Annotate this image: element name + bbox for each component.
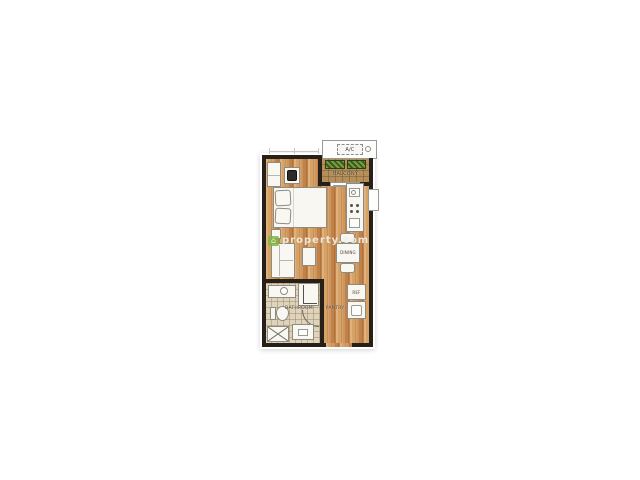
dining-chair-bottom: [340, 263, 355, 273]
wardrobe: [267, 162, 281, 187]
wall-bathroom-right: [320, 279, 324, 347]
stove-burner: [350, 210, 353, 213]
dining-label: DINING: [337, 251, 359, 255]
kitchen-sink-basin: [351, 190, 356, 195]
stove-burner: [356, 210, 359, 213]
ref-label: REF: [348, 291, 365, 295]
bed-pillow-bottom: [275, 208, 292, 225]
shower-glass-line: [303, 303, 317, 304]
floor-plan: A/C BALCONY DINING: [0, 0, 640, 480]
stove-burner: [356, 204, 359, 207]
wall-bottom-left: [262, 343, 326, 347]
lower-vanity: [292, 324, 314, 340]
refrigerator: REF: [347, 284, 366, 300]
counter-shelf: [349, 218, 360, 228]
sofa: [271, 243, 295, 278]
dimension-tick: [318, 148, 319, 154]
bed-pillow-top: [275, 190, 292, 207]
wall-balcony-bottom-left: [322, 182, 330, 186]
bath-mat: [267, 326, 289, 342]
coffee-table: [302, 247, 316, 266]
lower-vanity-basin: [298, 329, 308, 336]
pantry-counter: [347, 301, 366, 319]
dimension-tick: [269, 148, 270, 154]
dining-table: DINING: [336, 243, 360, 263]
vanity-sink: [280, 287, 288, 295]
planter-left: [325, 160, 345, 169]
shower-glass-line: [303, 285, 304, 304]
ac-drain-circle: [365, 146, 371, 152]
wardrobe-divider: [268, 175, 280, 176]
wall-left: [262, 155, 266, 347]
tv-icon: [287, 170, 297, 181]
dimension-tick: [294, 148, 295, 154]
wall-right: [369, 158, 373, 347]
entrance-floor-patch: [326, 343, 352, 347]
ac-label: A/C: [338, 148, 362, 153]
sofa-cushion-line: [280, 260, 293, 261]
balcony-label: BALCONY: [322, 172, 369, 177]
planter-right: [347, 160, 366, 169]
pantry-label: PANTRY: [323, 307, 347, 312]
wall-top: [262, 155, 322, 159]
blanket-fold-line: [293, 188, 294, 227]
stove-burner: [350, 204, 353, 207]
window-ledge: [368, 189, 379, 211]
house-icon: ⌂: [268, 236, 279, 246]
pantry-counter-sink: [351, 305, 362, 316]
shower: [298, 283, 319, 306]
ac-unit-box: A/C: [337, 144, 363, 155]
wall-bottom-right: [352, 343, 373, 347]
watermark-text: property.com: [282, 236, 369, 246]
